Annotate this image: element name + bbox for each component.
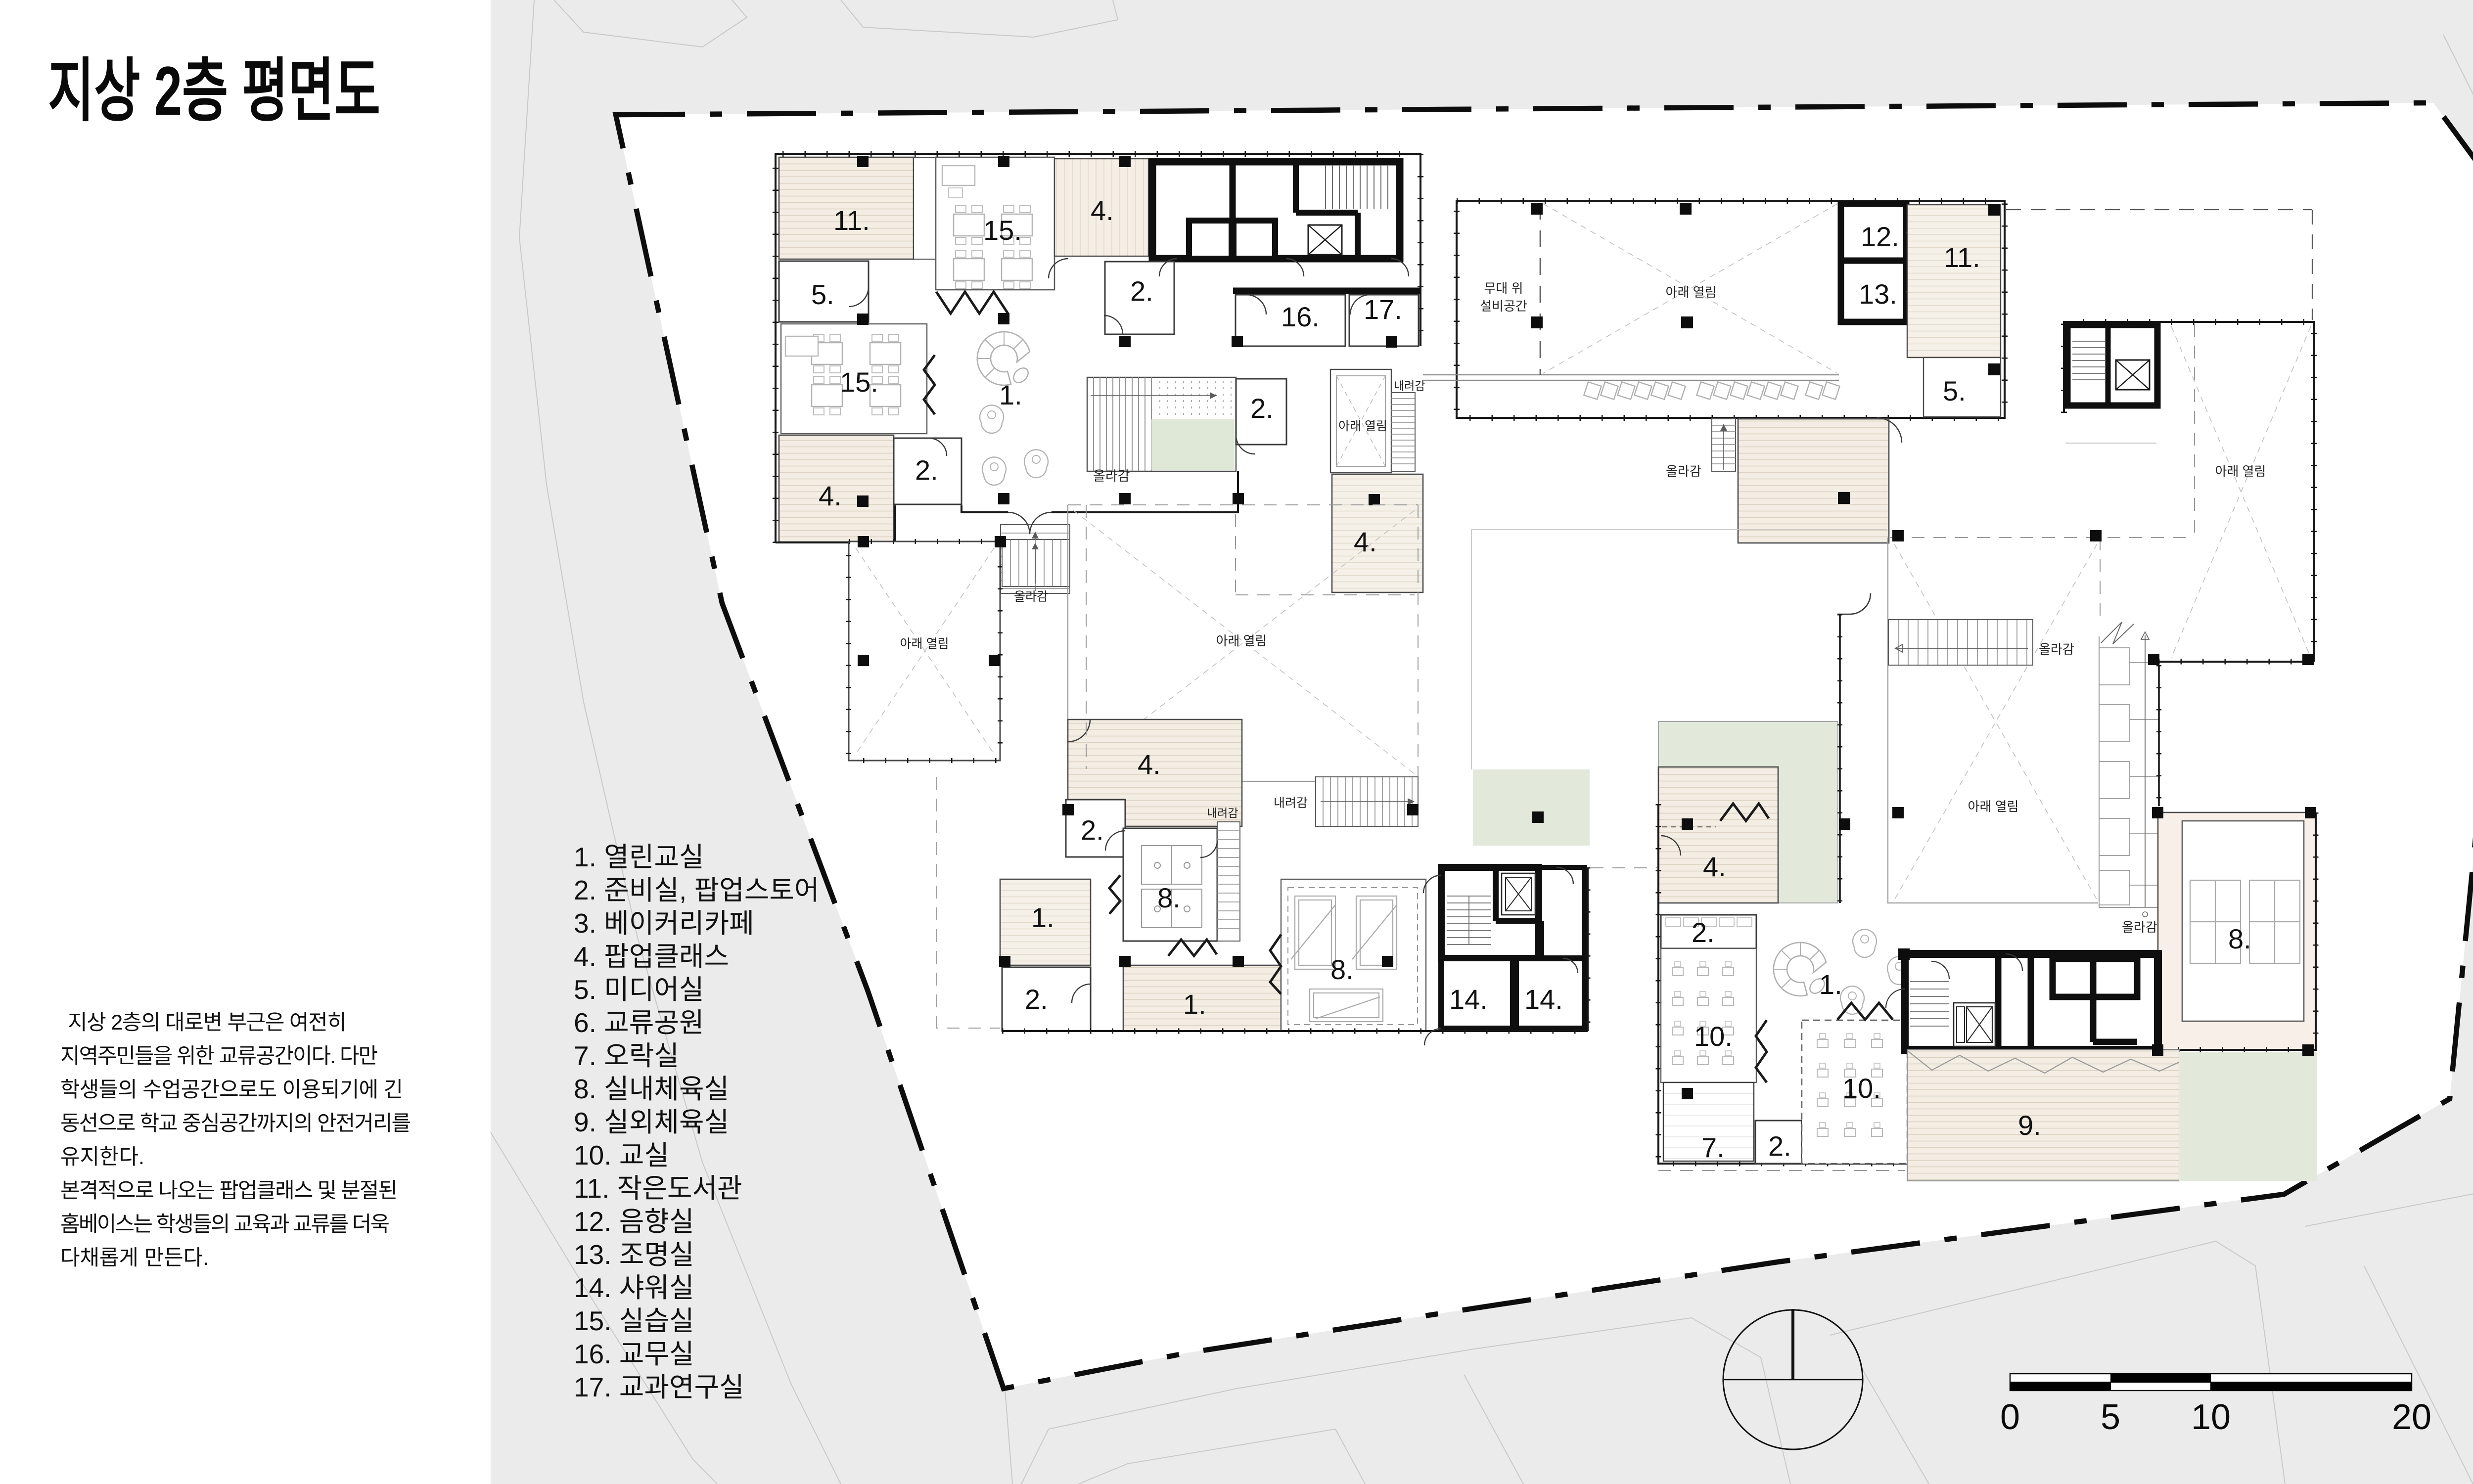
svg-text:2.: 2.: [1692, 917, 1715, 948]
svg-text:2.: 2.: [1768, 1130, 1791, 1162]
svg-text:20: 20: [2392, 1397, 2431, 1437]
svg-text:4.: 4.: [1703, 851, 1726, 882]
svg-text:4.: 4.: [1138, 749, 1161, 780]
svg-text:다채롭게 만든다.: 다채롭게 만든다.: [60, 1246, 209, 1270]
svg-text:아래 열림: 아래 열림: [1968, 799, 2019, 814]
svg-text:10.: 10.: [1842, 1073, 1881, 1104]
svg-text:2.: 2.: [1025, 984, 1048, 1015]
svg-text:홈베이스는 학생들의 교육과 교류를 더욱: 홈베이스는 학생들의 교육과 교류를 더욱: [60, 1213, 390, 1236]
svg-text:10. 교실: 10. 교실: [574, 1140, 669, 1170]
svg-text:아래 열림: 아래 열림: [2215, 464, 2266, 479]
svg-text:14. 샤워실: 14. 샤워실: [574, 1272, 694, 1303]
svg-text:무대 위: 무대 위: [1484, 281, 1523, 296]
svg-text:7.: 7.: [1701, 1132, 1725, 1163]
svg-text:13. 조명실: 13. 조명실: [574, 1239, 694, 1270]
svg-text:17. 교과연구실: 17. 교과연구실: [574, 1372, 744, 1402]
svg-text:9. 실외체육실: 9. 실외체육실: [574, 1107, 729, 1137]
svg-text:11.: 11.: [1944, 242, 1980, 273]
svg-text:3. 베이커리카페: 3. 베이커리카페: [574, 908, 754, 939]
svg-text:12. 음향실: 12. 음향실: [574, 1206, 694, 1237]
svg-text:아래 열림: 아래 열림: [1666, 285, 1717, 300]
svg-text:8.: 8.: [1157, 882, 1181, 913]
svg-text:5: 5: [2101, 1397, 2120, 1437]
svg-text:동선으로 학교 중심공간까지의 안전거리를: 동선으로 학교 중심공간까지의 안전거리를: [60, 1112, 411, 1135]
svg-text:10: 10: [2191, 1397, 2231, 1437]
svg-text:1. 열린교실: 1. 열린교실: [574, 842, 704, 872]
svg-text:설비공간: 설비공간: [1480, 299, 1527, 314]
svg-text:16. 교무실: 16. 교무실: [574, 1339, 694, 1369]
svg-text:4. 팝업클래스: 4. 팝업클래스: [574, 941, 729, 972]
svg-text:5.: 5.: [1943, 375, 1966, 406]
svg-text:올라감: 올라감: [1014, 590, 1048, 604]
svg-text:2.: 2.: [1130, 275, 1153, 307]
svg-text:4.: 4.: [1091, 195, 1114, 226]
svg-text:16.: 16.: [1281, 301, 1320, 332]
svg-text:1.: 1.: [1819, 969, 1842, 1000]
svg-text:내려감: 내려감: [1207, 807, 1238, 819]
svg-text:17.: 17.: [1364, 294, 1402, 325]
svg-text:본격적으로 나오는 팝업클래스 및 분절된: 본격적으로 나오는 팝업클래스 및 분절된: [60, 1179, 398, 1203]
svg-text:15.: 15.: [840, 366, 878, 398]
svg-text:7. 오락실: 7. 오락실: [574, 1040, 679, 1071]
svg-text:지역주민들을 위한 교류공간이다. 다만: 지역주민들을 위한 교류공간이다. 다만: [60, 1044, 378, 1068]
svg-text:올라감: 올라감: [2122, 920, 2157, 935]
svg-text:14.: 14.: [1524, 984, 1563, 1015]
svg-text:올라감: 올라감: [1666, 464, 1701, 479]
svg-text:8. 실내체육실: 8. 실내체육실: [574, 1074, 729, 1104]
svg-text:9.: 9.: [2018, 1110, 2041, 1141]
svg-text:15. 실습실: 15. 실습실: [574, 1305, 694, 1336]
svg-text:올라감: 올라감: [1093, 469, 1130, 484]
svg-text:12.: 12.: [1861, 221, 1899, 252]
svg-text:4.: 4.: [819, 480, 842, 511]
svg-text:6. 교류공원: 6. 교류공원: [574, 1007, 704, 1038]
svg-text:5. 미디어실: 5. 미디어실: [574, 974, 704, 1005]
svg-text:아래 열림: 아래 열림: [1216, 633, 1267, 648]
svg-text:8.: 8.: [2228, 923, 2251, 954]
svg-text:지상 2층 평면도: 지상 2층 평면도: [48, 52, 380, 130]
svg-text:1.: 1.: [1183, 989, 1206, 1020]
svg-text:1.: 1.: [1031, 902, 1054, 933]
svg-text:아래 열림: 아래 열림: [900, 637, 949, 651]
svg-text:0: 0: [2000, 1397, 2020, 1437]
svg-text:2.: 2.: [1081, 814, 1104, 846]
svg-text:아래 열림: 아래 열림: [1338, 419, 1387, 433]
svg-text:2. 준비실, 팝업스토어: 2. 준비실, 팝업스토어: [574, 875, 820, 905]
svg-text:13.: 13.: [1859, 278, 1897, 310]
svg-text:5.: 5.: [811, 279, 834, 310]
svg-text:내려감: 내려감: [1394, 379, 1425, 392]
svg-text:11.: 11.: [833, 205, 870, 236]
svg-text:14.: 14.: [1449, 984, 1488, 1015]
svg-text:지상 2층의 대로변 부근은 여전히: 지상 2층의 대로변 부근은 여전히: [68, 1011, 347, 1034]
svg-text:4.: 4.: [1354, 526, 1377, 557]
svg-text:학생들의 수업공간으로도 이용되기에 긴: 학생들의 수업공간으로도 이용되기에 긴: [60, 1078, 403, 1102]
svg-text:유지한다.: 유지한다.: [60, 1145, 144, 1169]
svg-text:내려감: 내려감: [1274, 796, 1308, 810]
svg-text:15.: 15.: [983, 215, 1022, 246]
svg-text:10.: 10.: [1694, 1021, 1733, 1052]
svg-text:11. 작은도서관: 11. 작은도서관: [574, 1173, 742, 1204]
svg-text:8.: 8.: [1330, 954, 1354, 985]
svg-text:2.: 2.: [1250, 393, 1274, 424]
svg-text:2.: 2.: [915, 454, 938, 486]
svg-text:올라감: 올라감: [2039, 642, 2074, 657]
svg-text:1.: 1.: [999, 379, 1022, 410]
